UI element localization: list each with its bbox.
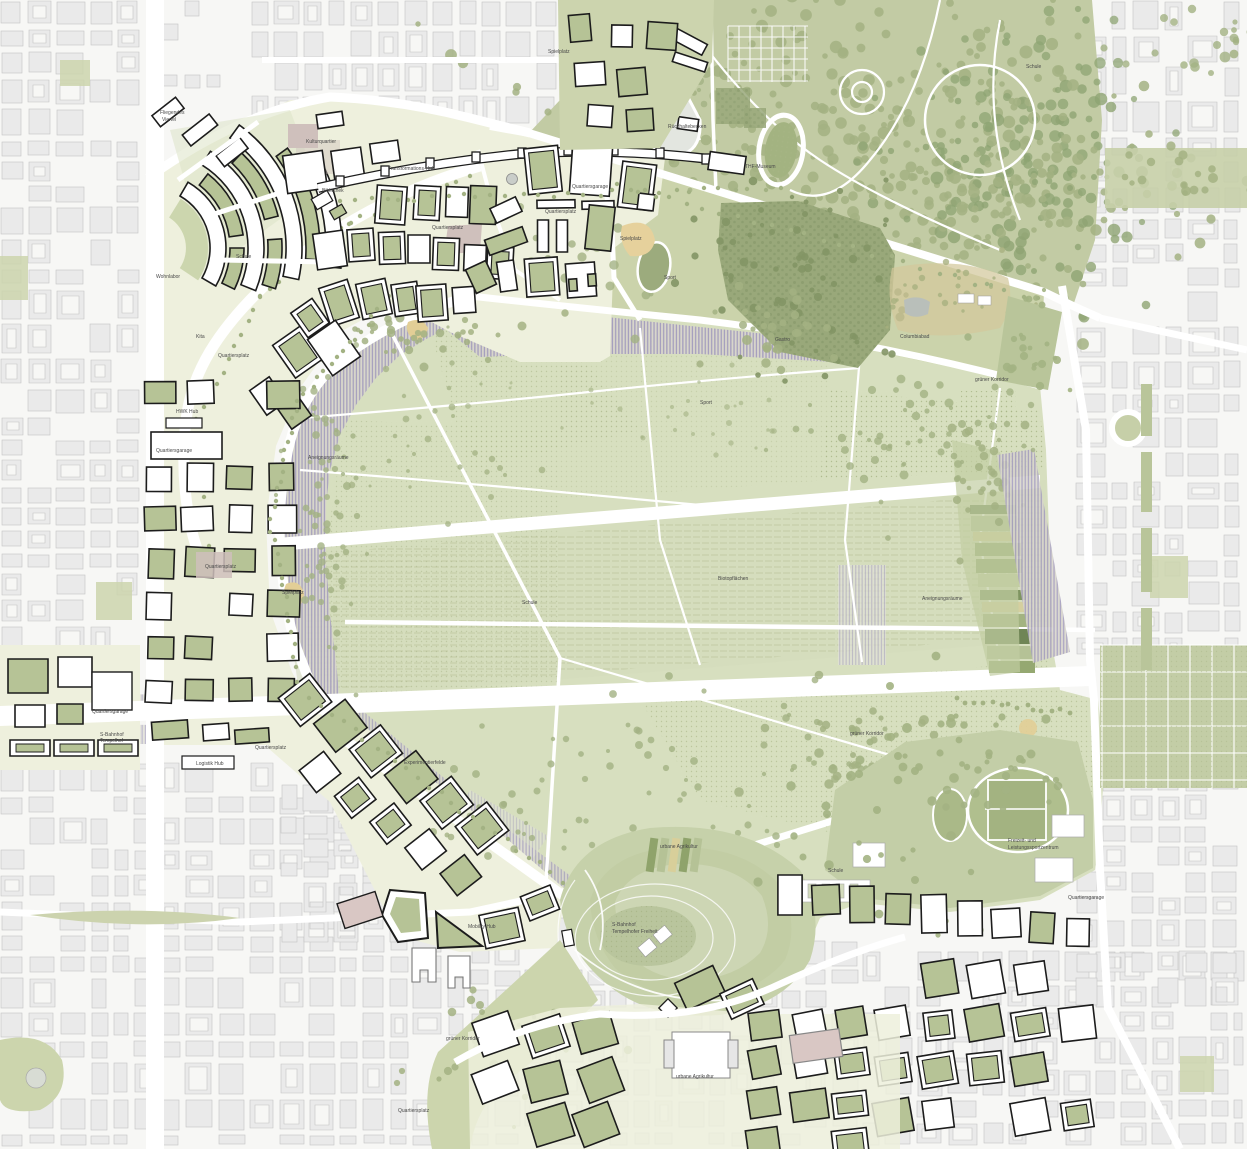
svg-text:Sport: Sport bbox=[664, 275, 677, 281]
svg-text:Gastro: Gastro bbox=[775, 337, 790, 343]
svg-text:Schule: Schule bbox=[1026, 64, 1042, 70]
svg-text:THF-Museum: THF-Museum bbox=[745, 164, 776, 170]
svg-text:urbane Agrikultur: urbane Agrikultur bbox=[660, 844, 698, 850]
svg-text:Schule: Schule bbox=[236, 254, 252, 260]
svg-text:HWK Hub: HWK Hub bbox=[176, 409, 198, 415]
svg-text:Leistungssportzentrum: Leistungssportzentrum bbox=[1008, 845, 1059, 851]
svg-text:Quartiersplatz: Quartiersplatz bbox=[255, 745, 287, 751]
svg-text:grüner Korridor: grüner Korridor bbox=[850, 731, 884, 737]
svg-text:S-Bahnhof: S-Bahnhof bbox=[612, 922, 636, 928]
svg-text:Quartiersgarage: Quartiersgarage bbox=[92, 709, 128, 715]
svg-text:grüner Korridor: grüner Korridor bbox=[975, 377, 1009, 383]
svg-text:Kulturquartier: Kulturquartier bbox=[306, 139, 336, 145]
svg-text:urbane Agrikultur: urbane Agrikultur bbox=[676, 1074, 714, 1080]
svg-text:Spielplatz: Spielplatz bbox=[620, 236, 642, 242]
svg-text:Spielplatz: Spielplatz bbox=[282, 590, 304, 596]
svg-text:Fliegendes: Fliegendes bbox=[160, 110, 185, 116]
svg-text:Tempelhofer Freiheit: Tempelhofer Freiheit bbox=[612, 929, 658, 935]
svg-text:Quartiersgarage: Quartiersgarage bbox=[572, 184, 608, 190]
svg-text:Kita: Kita bbox=[196, 334, 205, 340]
svg-text:Quartiersplatz: Quartiersplatz bbox=[205, 564, 237, 570]
svg-text:Columbiabad: Columbiabad bbox=[900, 334, 930, 340]
svg-text:Biotopflächen: Biotopflächen bbox=[718, 576, 749, 582]
svg-text:grüner Korridor: grüner Korridor bbox=[446, 1036, 480, 1042]
svg-text:Sport: Sport bbox=[700, 400, 713, 406]
svg-text:Aneignungsräume: Aneignungsräume bbox=[922, 596, 963, 602]
svg-text:Bibliothek: Bibliothek bbox=[322, 188, 344, 194]
svg-text:Schule: Schule bbox=[828, 868, 844, 874]
svg-text:Rückhaltebecken: Rückhaltebecken bbox=[668, 124, 707, 130]
svg-text:Mobility Hub: Mobility Hub bbox=[468, 924, 496, 930]
svg-text:Freizeit- und: Freizeit- und bbox=[1008, 838, 1036, 844]
svg-text:Aneignungsräume: Aneignungsräume bbox=[308, 455, 349, 461]
svg-text:Logistik Hub: Logistik Hub bbox=[196, 761, 224, 767]
svg-text:Quartiersplatz: Quartiersplatz bbox=[545, 209, 577, 215]
svg-text:Quartiersgarage: Quartiersgarage bbox=[1068, 895, 1104, 901]
svg-text:Quartiersplatz: Quartiersplatz bbox=[432, 225, 464, 231]
svg-text:Spielplatz: Spielplatz bbox=[548, 49, 570, 55]
svg-text:Viertel: Viertel bbox=[162, 117, 176, 123]
svg-text:Transformations-Hub: Transformations-Hub bbox=[388, 166, 435, 172]
svg-text:Quartiersplatz: Quartiersplatz bbox=[398, 1108, 430, 1114]
svg-text:Tempelhof: Tempelhof bbox=[100, 738, 124, 744]
svg-text:Schule: Schule bbox=[522, 600, 538, 606]
svg-text:Experimentierfelde: Experimentierfelde bbox=[404, 760, 446, 766]
svg-text:Quartiersgarage: Quartiersgarage bbox=[156, 448, 192, 454]
svg-text:Quartiersplatz: Quartiersplatz bbox=[218, 353, 250, 359]
svg-text:Wohnlabor: Wohnlabor bbox=[156, 274, 180, 280]
